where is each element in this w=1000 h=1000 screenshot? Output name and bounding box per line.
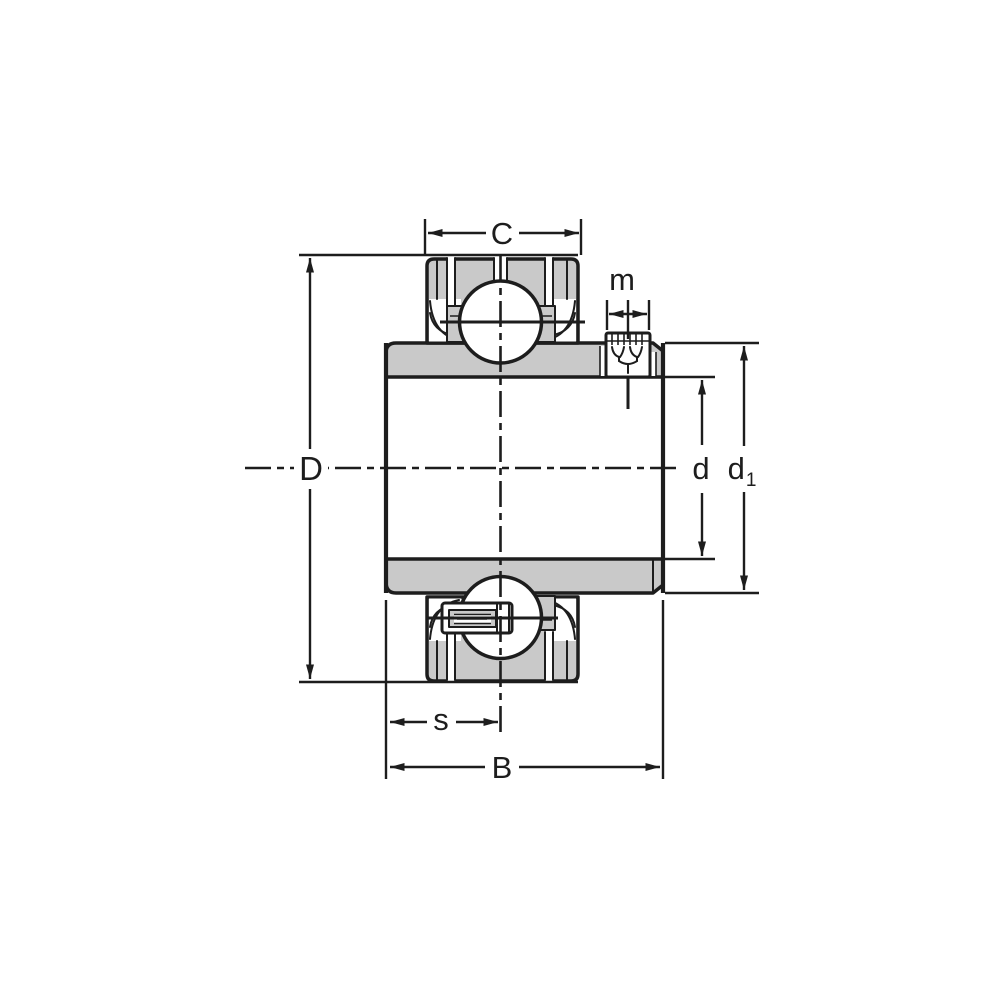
bearing-cross-section-drawing: C D d d1 m s <box>0 0 1000 1000</box>
dimension-m: m <box>607 262 649 339</box>
label-m: m <box>609 262 635 297</box>
label-D: D <box>299 450 323 487</box>
label-s: s <box>433 702 449 737</box>
label-d: d <box>692 451 709 486</box>
set-screw-top <box>600 333 656 409</box>
bearing-drawing-page: C D d d1 m s <box>0 0 1000 1000</box>
label-B: B <box>492 750 513 785</box>
label-C: C <box>491 216 513 251</box>
dimension-C: C <box>425 216 581 255</box>
